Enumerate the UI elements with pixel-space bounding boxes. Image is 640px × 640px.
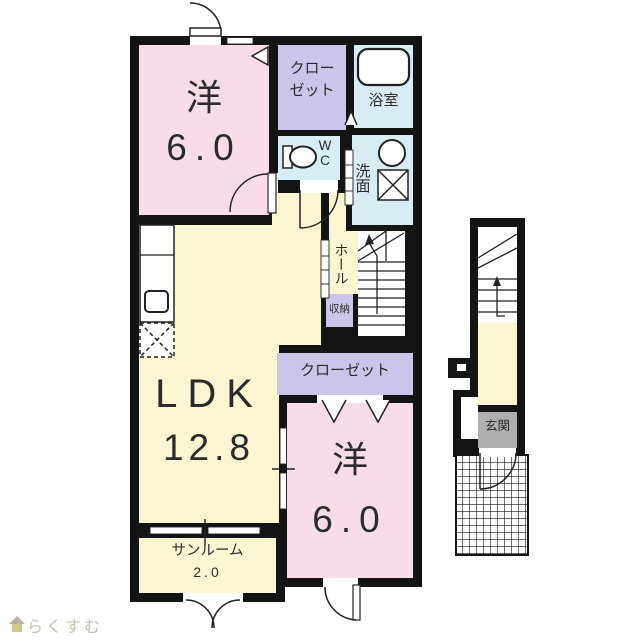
window-ldk-bedroom2 bbox=[280, 473, 287, 509]
window-top-wall bbox=[227, 38, 253, 45]
fridge-space-icon bbox=[140, 323, 174, 357]
bathtub-icon bbox=[358, 49, 409, 85]
floorplan-drawing bbox=[0, 0, 640, 640]
room-closet-bottom bbox=[277, 353, 413, 395]
entry-hall-floor bbox=[478, 323, 517, 405]
logo-house-icon bbox=[9, 616, 25, 632]
door-arc-sunroom-right bbox=[212, 600, 240, 628]
sliding-door-washroom bbox=[345, 150, 353, 205]
window-ldk-sunroom2 bbox=[208, 527, 260, 534]
door-arc-bedroom-bottom bbox=[325, 587, 356, 620]
room-storage bbox=[326, 294, 353, 327]
entry-wall-slot bbox=[457, 364, 466, 371]
room-bedroom-bottom bbox=[287, 403, 413, 578]
room-closet-top bbox=[278, 45, 346, 130]
shoe-cabinet bbox=[461, 397, 478, 439]
room-corridor bbox=[272, 193, 321, 345]
washer-space-icon bbox=[378, 170, 408, 200]
room-genkan bbox=[478, 412, 517, 448]
floorplan-canvas: 洋 6.0 クロー ゼット 浴室 W C 洗面 ホール 収納 クローゼット LD… bbox=[0, 0, 640, 640]
kitchen-sink-icon bbox=[145, 291, 168, 312]
window-ldk-sunroom bbox=[150, 527, 202, 534]
room-sunroom bbox=[139, 538, 276, 593]
washbasin-icon bbox=[379, 140, 405, 166]
porch bbox=[456, 455, 528, 555]
room-bedroom-top bbox=[139, 45, 269, 215]
kitchen-counter bbox=[140, 225, 174, 322]
brand-logo-text: らくすむ bbox=[27, 613, 103, 637]
toilet-icon bbox=[283, 146, 316, 168]
sliding-door-hall bbox=[321, 240, 329, 298]
window-ldk-bedroom bbox=[280, 428, 287, 464]
room-hall-b bbox=[329, 231, 358, 294]
door-arc-sunroom-left bbox=[186, 600, 214, 628]
